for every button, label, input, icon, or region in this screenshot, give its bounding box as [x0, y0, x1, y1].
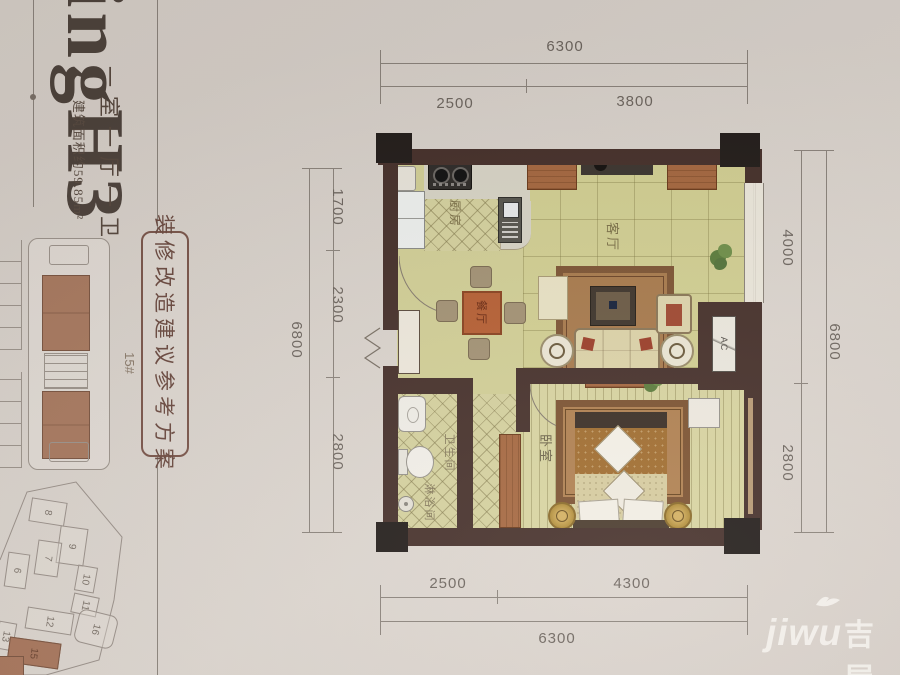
dim-left-total: 6800	[289, 315, 305, 365]
dim-top-total-line	[380, 63, 748, 64]
bathroom-label: 卫生间	[443, 429, 457, 477]
ac-unit: AC	[712, 316, 736, 372]
burner-icon	[433, 167, 450, 184]
nightstand-ring	[672, 510, 684, 522]
building-15-outline	[28, 238, 110, 470]
dim-left-c: 2800	[330, 427, 346, 477]
pillar-top-right	[720, 133, 760, 167]
left-rule	[33, 0, 34, 207]
dining-chair	[468, 338, 490, 360]
tv-cabinet-left	[527, 162, 577, 190]
wall-top	[378, 149, 760, 165]
floorplan-photo: ceilingH3 一室一厅一卫 建筑面积约59.85m² 装修改造建议参考方案…	[0, 0, 900, 675]
pillar-top-left	[376, 133, 412, 163]
nightstand	[664, 502, 692, 530]
dim-bottom-b: 4300	[602, 575, 662, 592]
dim-top-b: 3800	[605, 93, 665, 110]
burner-icon	[452, 167, 469, 184]
dining-label: 餐厅	[462, 295, 502, 331]
dim-tick	[794, 150, 834, 151]
proposal-box: 装修改造建议参考方案	[141, 231, 189, 457]
pillar-bottom-right	[724, 518, 760, 554]
plant-leaf	[714, 258, 727, 270]
dim-bottom-total-line	[380, 621, 748, 622]
wall-bottom	[378, 528, 760, 546]
pillar-bottom-left	[376, 522, 408, 552]
bedroom-dresser	[688, 398, 720, 428]
stove-controls	[433, 183, 467, 186]
toilet-bowl	[406, 446, 434, 478]
building-cap-top	[49, 245, 89, 265]
bird-icon	[814, 592, 842, 610]
unit-area: 建筑面积约59.85m²	[69, 85, 91, 235]
dining-chair	[504, 302, 526, 324]
bed	[575, 412, 667, 530]
dim-tick	[794, 383, 808, 384]
building-15-label: 15#	[122, 346, 138, 380]
side-stool	[540, 334, 574, 368]
dim-tick	[326, 250, 340, 251]
tall-appliance	[498, 197, 522, 243]
dim-tick	[497, 590, 498, 604]
side-stool	[660, 334, 694, 368]
wall-bath-hall	[457, 378, 473, 530]
watermark-cn: 吉屋	[844, 610, 900, 675]
dim-right-total: 6800	[827, 317, 843, 367]
building-cap-bottom	[49, 442, 89, 462]
armchair-cushion	[666, 304, 682, 326]
watermark-latin: jiwu	[766, 612, 842, 654]
stool-ring	[549, 343, 565, 359]
building-unit-block	[42, 275, 90, 351]
dim-bottom-total: 6300	[527, 630, 587, 647]
stool-ring	[669, 343, 685, 359]
stove	[428, 162, 472, 190]
dim-right-seg-line	[801, 150, 802, 533]
page-divider-top	[157, 0, 158, 232]
nightstand	[548, 502, 576, 530]
dim-top-total: 6300	[535, 38, 595, 55]
site-building-7: 7	[34, 540, 63, 578]
wall-left-upper	[383, 149, 398, 330]
dining-chair	[436, 300, 458, 322]
site-building-partial	[0, 656, 24, 675]
sofa-pillow	[581, 337, 595, 351]
dim-top-seg-line	[380, 86, 748, 87]
unit-layout: 一室一厅一卫	[95, 81, 125, 231]
kitchen-sink-cabinet	[396, 166, 416, 191]
window-right	[744, 183, 764, 303]
shower-dot	[404, 502, 408, 506]
dim-right-a: 4000	[780, 223, 796, 273]
dim-left-total-line	[309, 168, 310, 533]
basin-bowl	[407, 407, 419, 423]
dim-right-b: 2800	[780, 438, 796, 488]
side-table	[538, 276, 568, 320]
dim-bottom-a: 2500	[418, 575, 478, 592]
neighbour-building-strip	[0, 372, 22, 468]
dim-tick	[302, 168, 342, 169]
dim-tick	[747, 50, 748, 104]
nightstand-ring	[556, 510, 568, 522]
plant-leaf	[718, 244, 732, 258]
bed-bench	[575, 412, 667, 428]
appliance-grille	[502, 222, 518, 238]
entry-cabinet	[398, 310, 420, 374]
dim-bottom-seg-line	[380, 597, 748, 598]
kitchen-label: 厨房	[448, 194, 464, 234]
building-stairs	[44, 353, 88, 389]
dim-left-b: 2300	[330, 280, 346, 330]
bathroom-door-leaf	[499, 434, 521, 528]
plant	[710, 244, 732, 270]
coffee-table	[590, 286, 636, 326]
ac-label: AC	[697, 333, 751, 355]
entry-door-icon	[362, 327, 382, 369]
dining-chair	[470, 266, 492, 288]
right-wall-trim	[748, 398, 753, 514]
toilet	[398, 446, 432, 476]
appliance-door	[503, 202, 519, 218]
tv-cabinet-right	[667, 162, 717, 190]
dining-table: 餐厅	[462, 291, 502, 335]
wall-right-lower	[744, 390, 762, 530]
dim-tick	[794, 532, 834, 533]
wall-bedroom-top	[516, 368, 700, 384]
living-label: 客厅	[605, 217, 623, 257]
dim-tick	[380, 585, 381, 635]
bedroom-label: 卧室	[538, 427, 556, 471]
dim-tick	[302, 532, 342, 533]
neighbour-building-strip	[0, 240, 22, 350]
watermark: jiwu 吉屋	[766, 604, 900, 664]
shower-label: 淋浴间	[423, 479, 437, 527]
dim-left-a: 1700	[330, 182, 346, 232]
left-rule-dot	[30, 94, 36, 100]
wall-hall-stub	[516, 384, 530, 432]
page-divider-bottom	[157, 452, 158, 675]
sofa-pillow	[639, 337, 653, 351]
dim-tick	[326, 377, 340, 378]
washbasin	[398, 396, 426, 432]
dim-tick	[526, 79, 527, 93]
dim-tick	[380, 50, 381, 104]
fridge	[397, 191, 425, 249]
dim-tick	[747, 585, 748, 635]
fridge-divider	[398, 218, 424, 219]
dim-top-a: 2500	[425, 95, 485, 112]
shower-head	[398, 496, 414, 512]
table-item	[609, 301, 617, 309]
armchair	[656, 294, 692, 334]
